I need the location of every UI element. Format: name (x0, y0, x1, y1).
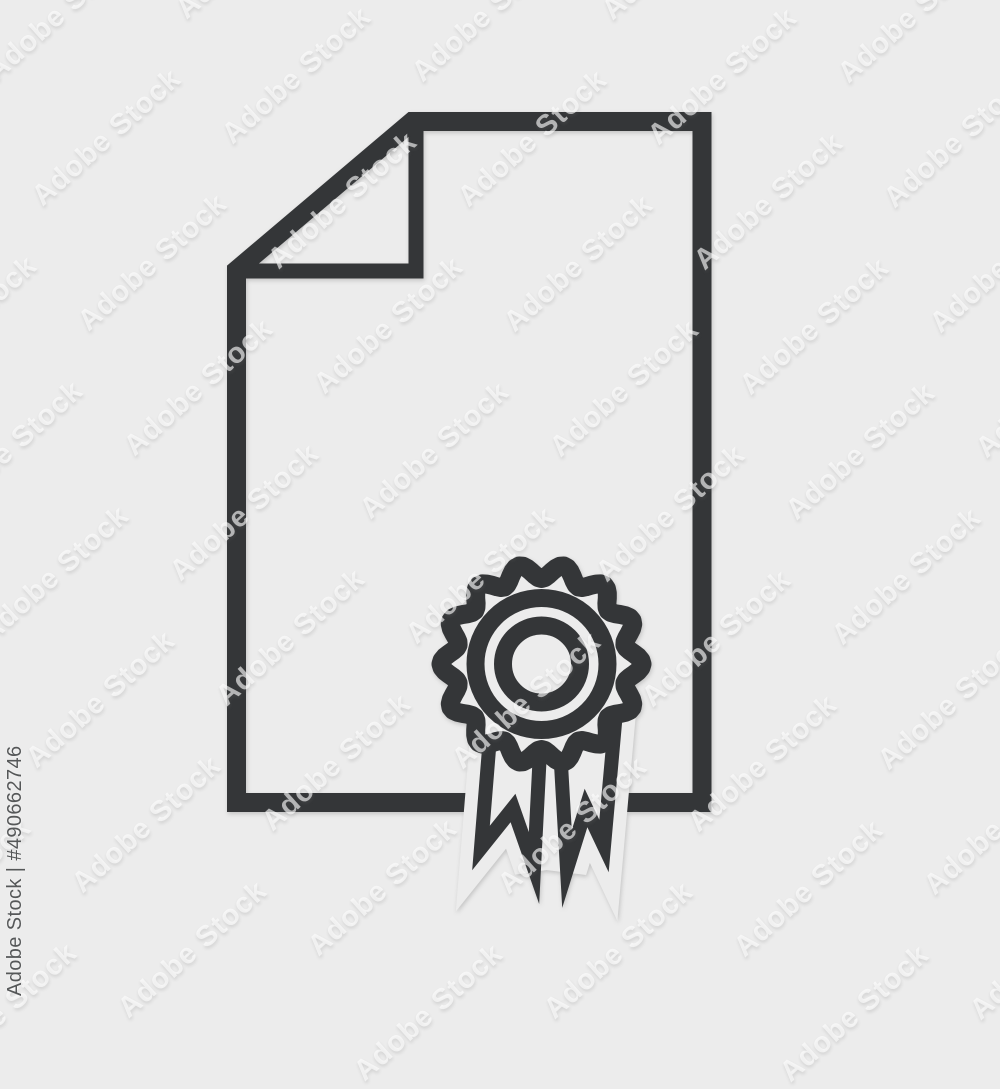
stock-credit-label: Adobe Stock | #490662746 (4, 745, 27, 996)
stock-image-canvas: Adobe StockAdobe StockAdobe StockAdobe S… (0, 0, 1000, 1000)
certificate-icon (0, 0, 1000, 1000)
